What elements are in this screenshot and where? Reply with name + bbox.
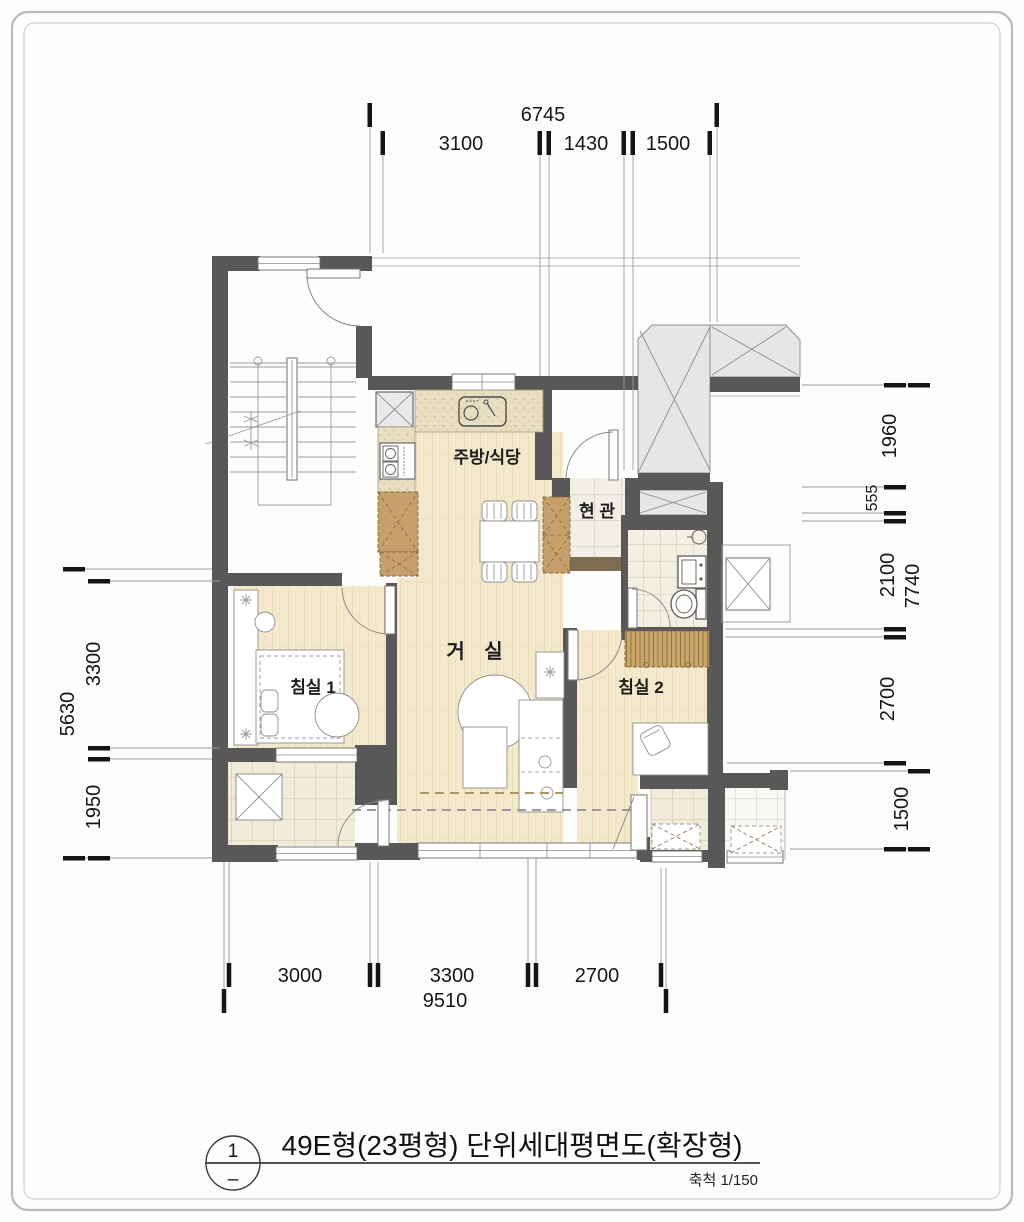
dim-top-seg2: 1430 [564,133,609,155]
living-window-band [418,843,637,858]
dim-bottom-seg3: 2700 [575,965,620,987]
cooktop [380,443,415,479]
balcony-left-window [276,847,357,860]
bed2-balcony-door-leaf [631,795,647,850]
pillow [261,690,278,712]
dim-right-seg2: 555 [864,485,881,512]
bed1-door-leaf [385,586,395,634]
desk [633,723,708,775]
kitchen-window [452,374,515,390]
bed1-side-unit [234,590,258,745]
room-label-living: 거 실 [446,640,509,663]
dining-table [480,521,539,562]
floor-plan-drawing: 주방/식당 현 관 거 실 침실 1 침실 2 6745 3100 1430 1… [0,0,1024,1222]
stair-window [258,257,320,270]
dim-top-seg3: 1500 [646,133,691,155]
dim-bottom-seg2: 3300 [430,965,475,987]
scale-label: 축척 1/150 [689,1172,758,1189]
dim-right-seg3: 2100 [877,553,899,598]
dim-top-seg1: 3100 [439,133,484,155]
dim-left-seg2: 1950 [83,785,105,830]
sheet-number-dash: – [228,1169,239,1190]
drawing-title: 49E형(23평형) 단위세대평면도(확장형) [282,1130,743,1161]
dim-left-overall: 5630 [57,692,79,737]
bed1-round-table [315,693,359,737]
dim-left-seg1: 3300 [83,642,105,687]
dim-right-seg5: 1500 [891,787,913,832]
room-label-kitchen: 주방/식당 [453,448,521,467]
bed2-door-leaf [568,630,578,680]
bed1-stool [255,612,275,632]
front-door-leaf [609,430,618,480]
dim-bottom-seg1: 3000 [278,965,323,987]
stair-door-leaf [307,269,360,278]
room-label-bedroom1: 침실 1 [290,677,335,697]
toilet [671,589,706,619]
drawing-sheet: 주방/식당 현 관 거 실 침실 1 침실 2 6745 3100 1430 1… [0,0,1024,1222]
room-label-bedroom2: 침실 2 [618,677,663,697]
sheet-number: 1 [228,1141,239,1162]
dim-right-seg4: 2700 [877,677,899,722]
dim-bottom-overall: 9510 [423,990,468,1012]
balcony-bed2-window [652,851,702,862]
wardrobe [667,631,709,667]
wardrobe [625,631,667,667]
dim-right-seg1: 1960 [879,414,901,459]
balcony-door-leaf [378,800,389,846]
room-label-entrance: 현 관 [579,502,615,521]
bath-door-leaf [628,588,637,628]
dim-right-overall: 7740 [902,564,924,609]
bath-sink [678,556,706,588]
pillow [261,714,278,736]
bedroom1-window [276,748,357,762]
coffee-table [463,727,507,788]
dim-top-overall: 6745 [521,104,566,126]
entrance-threshold [570,557,625,571]
